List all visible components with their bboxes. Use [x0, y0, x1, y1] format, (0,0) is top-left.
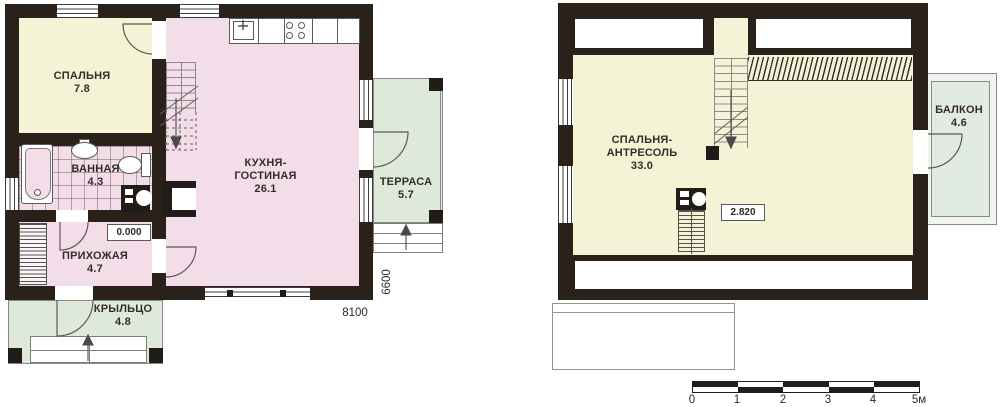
toilet-tank	[141, 153, 151, 177]
stove-burner-2	[298, 22, 305, 29]
chimney-vent-1	[680, 191, 689, 197]
room-kitchen-living	[166, 18, 359, 286]
window-mullion-2	[280, 290, 286, 297]
mezzanine-railing	[748, 57, 912, 81]
terrace-steps	[373, 223, 443, 253]
scale-seg	[874, 387, 919, 392]
scale-label-1: 1	[727, 394, 747, 406]
washing-machine-door	[136, 190, 152, 206]
mezzanine-area: 33.0	[578, 160, 706, 173]
balcony-name: БАЛКОН	[920, 104, 998, 117]
scale-seg	[738, 387, 783, 392]
porch-name: КРЫЛЬЦО	[63, 303, 183, 316]
balcony-area	[931, 81, 990, 217]
stove-burner-3	[286, 32, 293, 39]
counter-divider-3	[312, 19, 313, 43]
stairs-floor1	[166, 62, 196, 112]
bathtub	[21, 144, 53, 204]
roof-outline-line	[553, 312, 734, 313]
knee-wall-bottom	[575, 261, 912, 289]
bathroom-label: ВАННАЯ 4.3	[53, 163, 138, 189]
bathroom-door-gap	[56, 210, 88, 222]
kitchen-sink	[233, 21, 254, 40]
level-mark-floor1: 0.000	[107, 224, 151, 241]
dimension-8100: 8100	[330, 307, 380, 319]
stove-burner-1	[286, 22, 293, 29]
terrace-name: ТЕРРАСА	[368, 176, 444, 189]
bedroom-label: СПАЛЬНЯ 7.8	[32, 70, 132, 96]
porch-post-left	[8, 348, 22, 363]
porch-steps	[30, 336, 147, 363]
window-mullion-1	[227, 290, 233, 297]
scale-seg	[829, 387, 874, 392]
scale-label-0: 0	[682, 394, 702, 406]
stair-post	[706, 146, 719, 160]
chimney-stove	[676, 188, 706, 210]
level-mark-floor2: 2.820	[721, 204, 765, 221]
stove-burner-4	[298, 32, 305, 39]
chimney-vent-2	[680, 200, 689, 205]
kitchen-area: 26.1	[203, 183, 328, 196]
balcony-label: БАЛКОН 4.6	[920, 104, 998, 130]
floor-plans-image: 0.000 СПАЛЬНЯ 7.8 ВАННАЯ 4.3 ПРИХОЖАЯ 4.…	[0, 0, 1000, 407]
dimension-6600: 6600	[381, 257, 393, 307]
stairs-floor2-centerline	[731, 58, 732, 148]
porch-step-divider	[89, 337, 90, 362]
scale-label-3: 3	[818, 394, 838, 406]
bathroom-area: 4.3	[53, 176, 138, 189]
window-mezzanine-left-1	[558, 79, 573, 125]
mezzanine-name-line1: СПАЛЬНЯ-	[578, 134, 706, 147]
terrace-step-line1	[374, 233, 442, 234]
terrace-post-top	[429, 78, 443, 91]
knee-wall-top-right	[756, 19, 911, 48]
chimney-flue	[692, 192, 706, 206]
window-bedroom-top	[57, 4, 98, 18]
bathroom-name: ВАННАЯ	[53, 163, 138, 176]
counter-divider-1	[258, 19, 259, 43]
porch-label: КРЫЛЬЦО 4.8	[63, 303, 183, 329]
washing-machine-panel-1	[125, 189, 133, 195]
porch-post-right	[149, 348, 163, 363]
kitchen-name-line1: КУХНЯ-	[203, 157, 328, 170]
terrace-post-bottom	[429, 210, 443, 223]
stairs-floor1-centerline	[181, 62, 182, 112]
washing-machine	[121, 185, 150, 212]
counter-divider-2	[284, 19, 285, 43]
mezzanine-label: СПАЛЬНЯ- АНТРЕСОЛЬ 33.0	[578, 134, 706, 173]
hallway-kitchen-door-gap	[152, 239, 166, 273]
balcony-door-gap	[913, 130, 928, 174]
bedroom-door-gap	[152, 21, 166, 59]
fireplace-opening	[172, 188, 196, 210]
scale-seg	[693, 387, 738, 392]
stairs-floor2	[714, 58, 748, 148]
terrace-area: 5.7	[368, 189, 444, 202]
window-kitchen-bottom	[205, 287, 310, 300]
window-mezzanine-left-2	[558, 166, 573, 223]
hallway-name: ПРИХОЖАЯ	[40, 250, 150, 263]
bathroom-sink	[71, 142, 98, 159]
porch-area: 4.8	[63, 316, 183, 329]
stair-shaft-floor2	[714, 18, 748, 60]
counter-divider-4	[337, 19, 338, 43]
scale-bar	[692, 381, 920, 393]
entrance-door-gap	[55, 286, 93, 300]
fireplace	[162, 181, 196, 217]
terrace-step-line2	[374, 243, 442, 244]
window-kitchen-top	[180, 4, 219, 18]
loft-ladder-rail	[691, 208, 692, 254]
knee-wall-top-left	[575, 19, 703, 48]
bathtub-drain	[34, 189, 41, 196]
scale-label-5m: 5м	[906, 394, 932, 406]
hallway-label: ПРИХОЖАЯ 4.7	[40, 250, 150, 276]
bedroom-area: 7.8	[32, 83, 132, 96]
roof-outline	[552, 303, 735, 370]
balcony-area: 4.6	[920, 117, 998, 130]
terrace-door-gap	[359, 128, 373, 170]
hallway-area: 4.7	[40, 263, 150, 276]
window-bathroom-left	[5, 178, 19, 210]
scale-label-2: 2	[773, 394, 793, 406]
kitchen-label: КУХНЯ- ГОСТИНАЯ 26.1	[203, 157, 328, 196]
window-kitchen-right-1	[359, 80, 373, 120]
mezzanine-name-line2: АНТРЕСОЛЬ	[578, 147, 706, 160]
bedroom-name: СПАЛЬНЯ	[32, 70, 132, 83]
kitchen-name-line2: ГОСТИНАЯ	[203, 170, 328, 183]
washing-machine-panel-2	[125, 198, 133, 203]
scale-label-4: 4	[863, 394, 883, 406]
scale-seg	[783, 387, 828, 392]
terrace-label: ТЕРРАСА 5.7	[368, 176, 444, 202]
